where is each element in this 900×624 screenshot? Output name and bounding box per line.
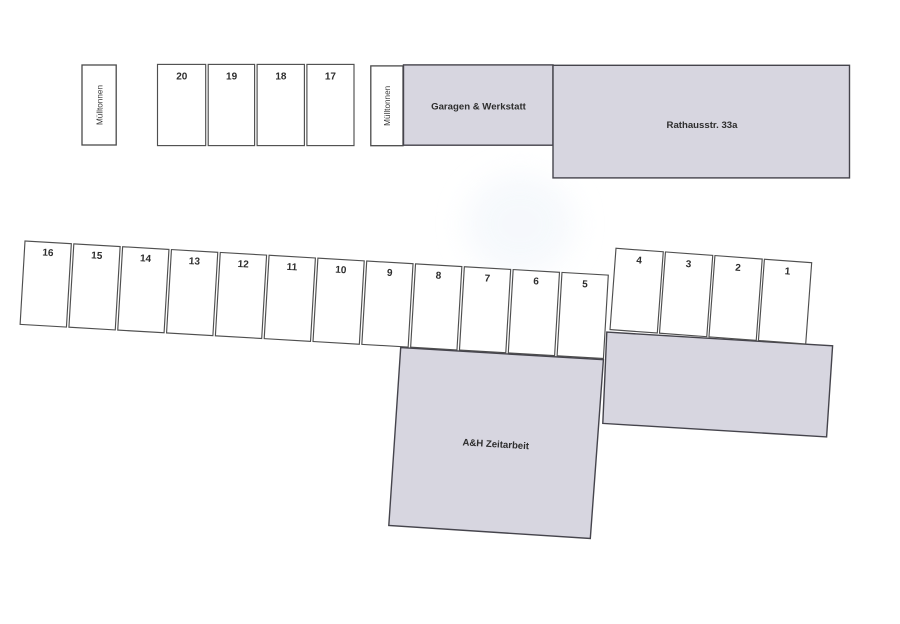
- svg-text:6: 6: [533, 276, 540, 287]
- svg-text:Rathausstr. 33a: Rathausstr. 33a: [667, 120, 739, 131]
- svg-text:10: 10: [335, 265, 347, 277]
- svg-text:Mülltonnen: Mülltonnen: [96, 85, 105, 126]
- svg-text:Mülltonnen: Mülltonnen: [383, 85, 392, 126]
- svg-text:15: 15: [91, 250, 103, 262]
- svg-text:18: 18: [275, 72, 287, 83]
- svg-text:11: 11: [286, 262, 298, 274]
- svg-text:14: 14: [140, 253, 152, 265]
- svg-text:12: 12: [237, 259, 249, 271]
- svg-text:5: 5: [582, 279, 589, 290]
- svg-text:8: 8: [435, 271, 442, 282]
- svg-text:7: 7: [484, 273, 491, 284]
- svg-text:16: 16: [42, 248, 54, 260]
- svg-text:9: 9: [387, 268, 394, 279]
- svg-text:19: 19: [226, 72, 238, 83]
- svg-text:13: 13: [188, 256, 200, 268]
- svg-text:Garagen & Werkstatt: Garagen & Werkstatt: [431, 102, 527, 113]
- svg-text:17: 17: [325, 72, 337, 83]
- svg-text:20: 20: [176, 72, 188, 83]
